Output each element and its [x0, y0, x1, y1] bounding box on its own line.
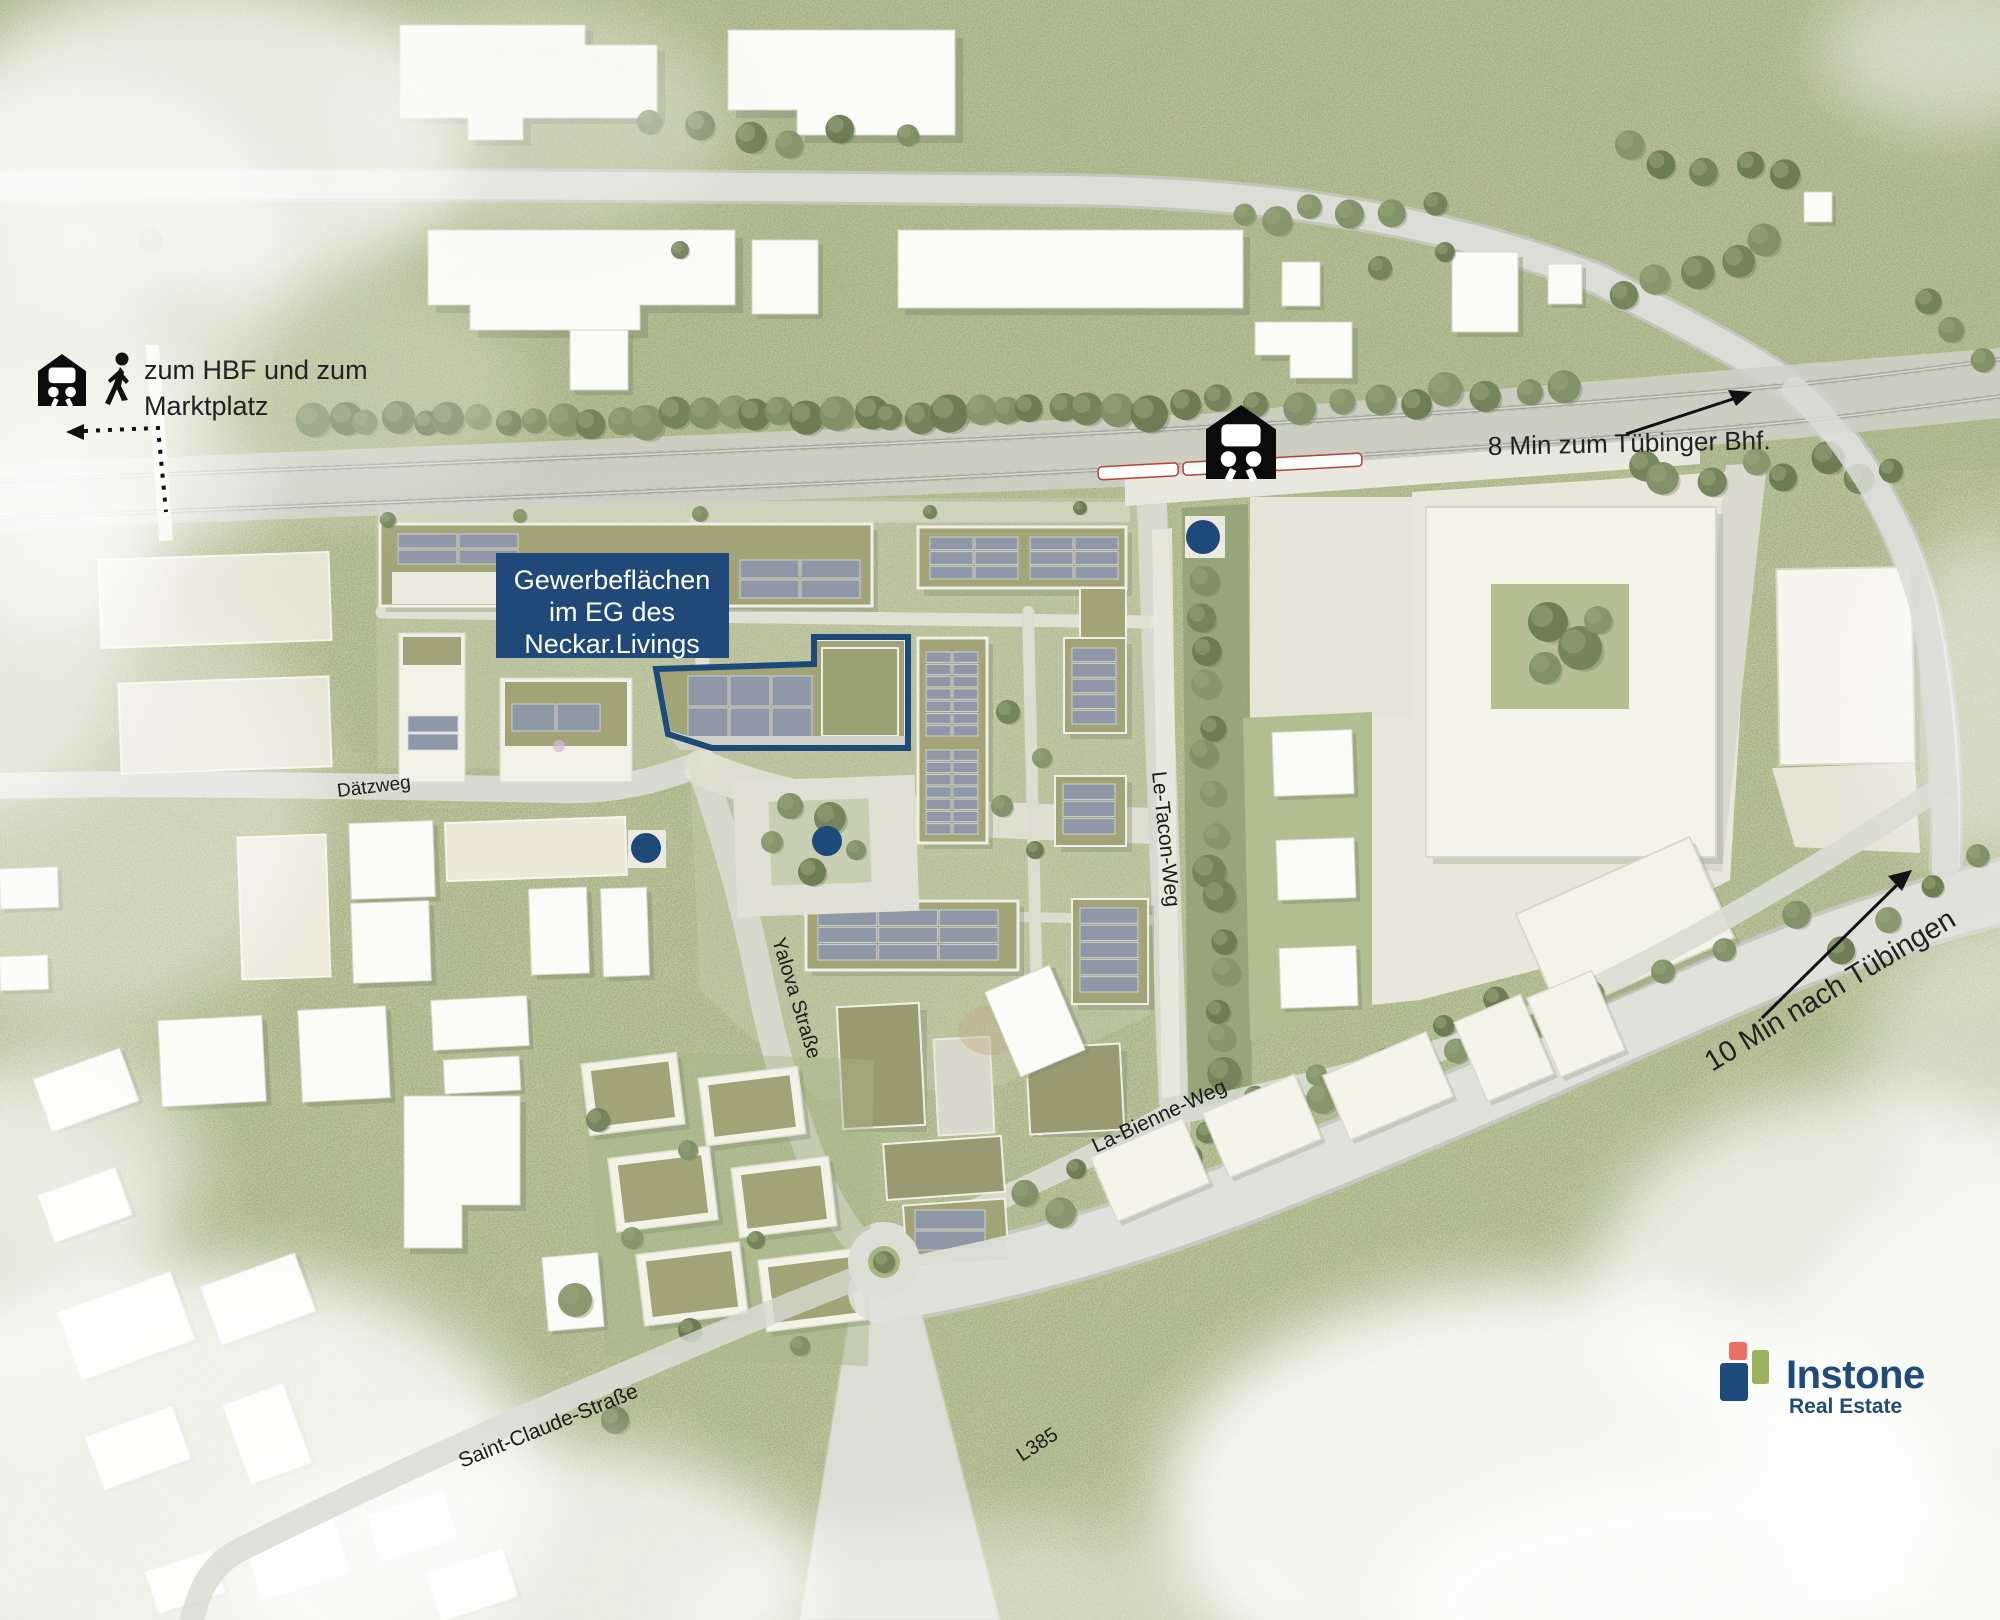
svg-text:im EG des: im EG des: [549, 597, 675, 627]
svg-text:8 Min zum Tübinger Bhf.: 8 Min zum Tübinger Bhf.: [1487, 425, 1770, 461]
svg-text:Neckar.Livings: Neckar.Livings: [524, 629, 700, 659]
svg-text:zum HBF und zum: zum HBF und zum: [144, 355, 368, 385]
svg-text:Real Estate: Real Estate: [1789, 1395, 1902, 1418]
svg-text:Marktplatz: Marktplatz: [144, 391, 269, 421]
svg-text:Instone: Instone: [1786, 1353, 1925, 1397]
svg-text:Gewerbeflächen: Gewerbeflächen: [514, 565, 711, 595]
